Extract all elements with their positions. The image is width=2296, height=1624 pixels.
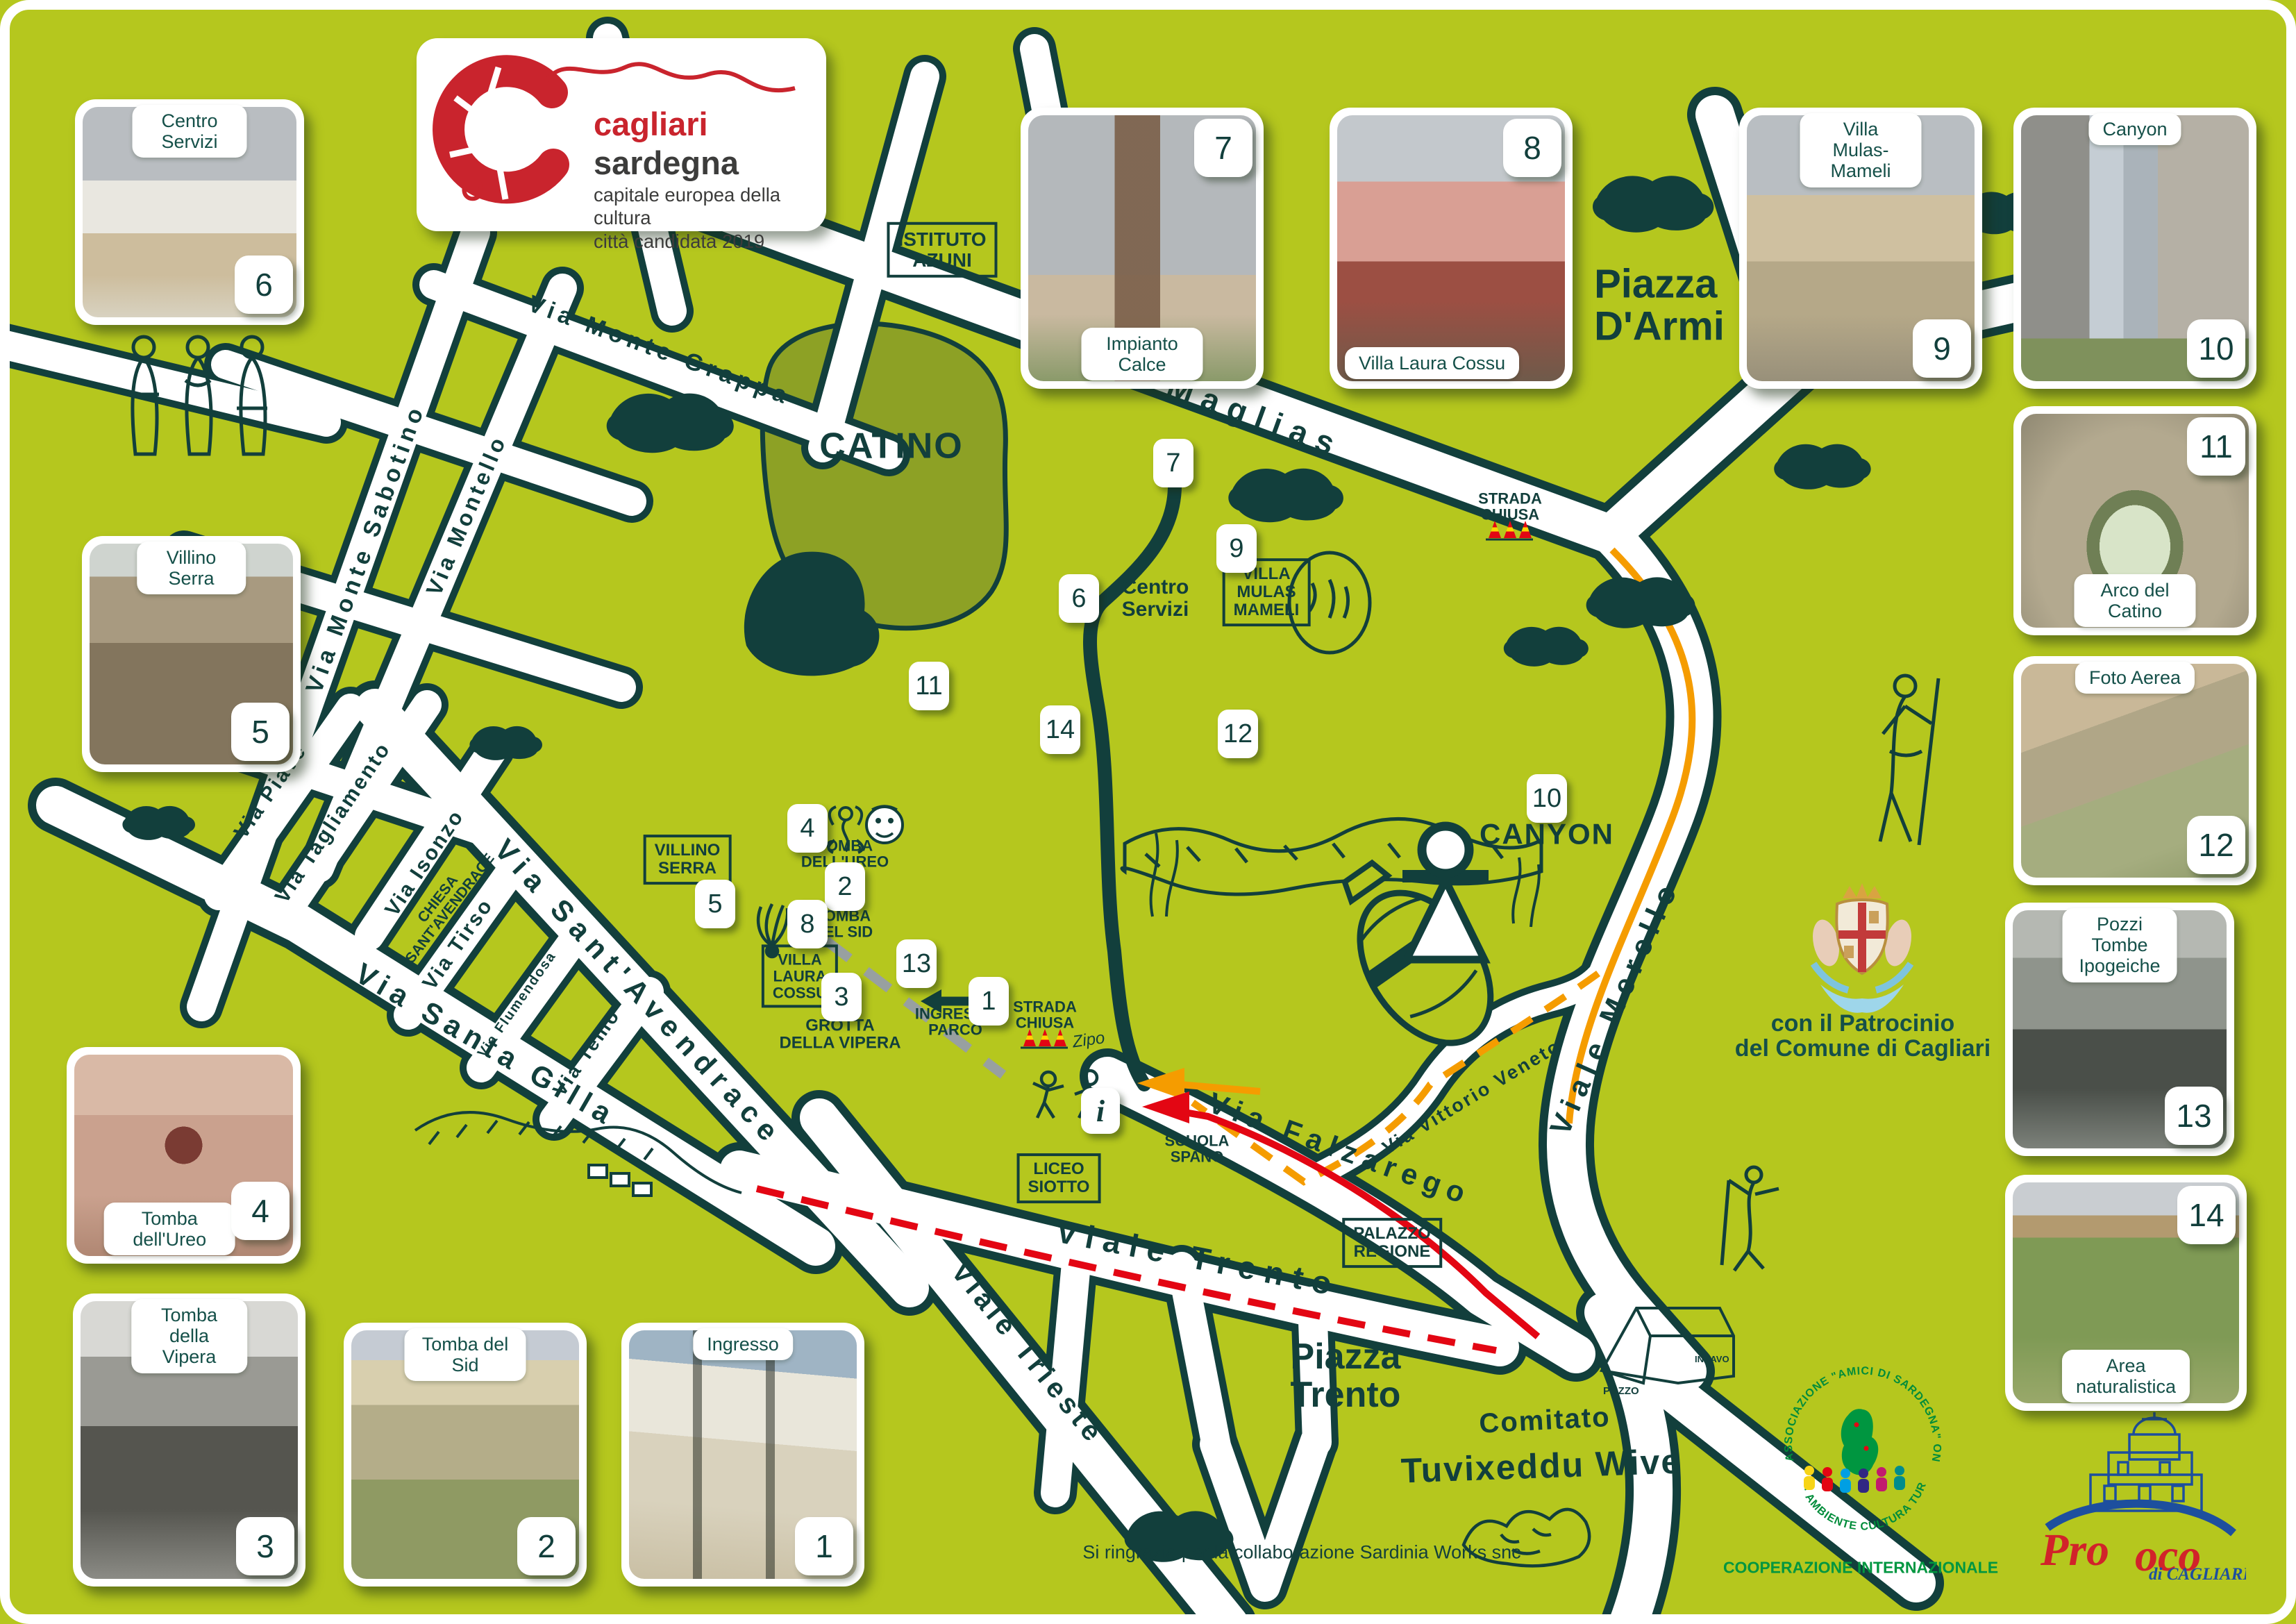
villino-serra-box: VILLINO SERRA	[644, 835, 732, 885]
card-number: 2	[517, 1517, 576, 1575]
card-label: Tomba dell'Ureo	[104, 1203, 235, 1255]
map-marker-2: 2	[825, 862, 865, 911]
card-number: 1	[795, 1517, 853, 1575]
photo-card-11: Arco del Catino 11	[2013, 406, 2256, 635]
card-label: Centro Servizi	[133, 105, 247, 158]
cagliari-2019-logo-card: cagliari sardegna capitale europea della…	[417, 38, 826, 231]
palazzo-regione-box: PALAZZO REGIONE	[1342, 1218, 1442, 1268]
proloco-text-sub: di CAGLIARI	[2149, 1565, 2246, 1581]
svg-text:POZZO: POZZO	[1603, 1385, 1639, 1397]
photo-card-7: Impianto Calce 7	[1021, 108, 1264, 389]
card-number: 9	[1913, 319, 1971, 378]
proloco-text-pro: Pro	[2040, 1525, 2109, 1575]
map-marker-7: 7	[1153, 439, 1193, 487]
map-marker-11: 11	[909, 662, 949, 710]
card-number: 13	[2165, 1087, 2223, 1145]
park-road	[1090, 480, 1175, 1085]
tuvixeddu-map-poster: POZZO INCAVO	[0, 0, 2296, 1624]
liceo-siotto-box: LICEO SIOTTO	[1017, 1153, 1101, 1203]
map-marker-8: 8	[787, 900, 828, 948]
cones-icon-top	[1486, 521, 1533, 539]
committee-title: Comitato	[1478, 1403, 1611, 1439]
logo-thread	[546, 64, 795, 90]
photo-card-4: Tomba dell'Ureo 4	[67, 1047, 301, 1264]
place-label-piazza-darmi: Piazza D'Armi	[1594, 263, 1725, 349]
photo-card-1: Ingresso 1	[621, 1323, 864, 1587]
map-marker-5: 5	[695, 880, 735, 928]
map-marker-9: 9	[1216, 524, 1257, 573]
map-marker-14: 14	[1040, 705, 1080, 754]
map-marker-4: 4	[787, 804, 828, 853]
card-number: 10	[2187, 319, 2245, 378]
card-number: 12	[2187, 816, 2245, 874]
cones-icon-low	[1021, 1029, 1068, 1048]
association-cooperation-text: COOPERAZIONE INTERNAZIONALE	[1723, 1559, 1998, 1577]
logo-title-red: cagliari	[594, 106, 708, 142]
place-label-canyon: CANYON	[1480, 819, 1614, 851]
shield-cross-h	[1838, 930, 1886, 939]
card-label: Villa Mulas-Mameli	[1800, 113, 1922, 187]
place-label-centro-servizi: Centro Servizi	[1122, 576, 1189, 621]
photo-card-8: Villa Laura Cossu 8	[1330, 108, 1573, 389]
card-number: 11	[2187, 417, 2245, 476]
logo-text-block: cagliari sardegna capitale europea della…	[594, 105, 826, 253]
egyptian-figure-sketch	[1880, 676, 1938, 845]
logo-subtitle-1: capitale europea della cultura	[594, 183, 826, 230]
card-number: 14	[2177, 1186, 2236, 1244]
card-number: 5	[231, 703, 290, 761]
place-label-grotta-vipera: GROTTA DELLA VIPERA	[779, 1017, 900, 1053]
card-number: 4	[231, 1182, 290, 1240]
island-dot-2	[1864, 1446, 1869, 1451]
card-label: Impianto Calce	[1082, 328, 1203, 380]
photo-card-5: Villino Serra 5	[82, 536, 301, 772]
thanks-text: Si ringrazia per la collaborazione Sardi…	[1082, 1543, 1520, 1563]
card-number: 8	[1503, 119, 1561, 177]
island-dot-1	[1854, 1423, 1859, 1428]
place-label-strada-chiusa-low: STRADA CHIUSA	[1013, 999, 1077, 1032]
castle-quarter-2	[1844, 946, 1854, 958]
photo-card-6: Centro Servizi 6	[75, 99, 304, 325]
photo-card-3: Tomba della Vipera 3	[73, 1294, 305, 1587]
photo-card-13: Pozzi Tombe Ipogeiche 13	[2005, 903, 2234, 1156]
climber-figure-sketch	[1722, 1167, 1779, 1271]
info-point-marker: i	[1081, 1088, 1120, 1134]
amici-di-sardegna-logo: ASSOCIAZIONE "AMICI DI SARDEGNA" ONLUS ·…	[1769, 1366, 1956, 1568]
photo-card-14: Area naturalistica 14	[2005, 1175, 2247, 1411]
card-label: Canyon	[2088, 113, 2181, 145]
map-marker-12: 12	[1218, 710, 1258, 758]
photo-card-9: Villa Mulas-Mameli 9	[1739, 108, 1982, 389]
card-label: Area naturalistica	[2062, 1350, 2190, 1403]
photo-card-10: Canyon 10	[2013, 108, 2256, 389]
proloco-logo: Pro oco di CAGLIARI	[2031, 1411, 2246, 1581]
logo-subtitle-2: città candidata 2019	[594, 230, 826, 253]
map-marker-3: 3	[821, 973, 862, 1021]
proloco-building-sketch	[2090, 1412, 2202, 1511]
sea-frill	[1820, 985, 1904, 1013]
map-marker-1: 1	[969, 977, 1009, 1026]
card-number: 3	[236, 1517, 294, 1575]
logo-title-dark: sardegna	[594, 144, 739, 181]
card-label: Pozzi Tombe Ipogeiche	[2063, 908, 2177, 982]
svg-text:INCAVO: INCAVO	[1695, 1354, 1729, 1364]
card-number: 7	[1194, 119, 1252, 177]
card-label: Villa Laura Cossu	[1345, 347, 1519, 379]
castle-quarter-1	[1869, 911, 1879, 923]
logo-title: cagliari sardegna	[594, 105, 826, 183]
photo-card-12: Foto Aerea 12	[2013, 656, 2256, 885]
map-marker-13: 13	[896, 939, 937, 988]
card-label: Arco del Catino	[2075, 574, 2196, 627]
card-label: Ingresso	[693, 1328, 793, 1360]
place-label-strada-chiusa-top: STRADA CHIUSA	[1478, 491, 1542, 524]
istituto-azuni-box: ISTITUTO AZUNI	[887, 222, 997, 278]
place-label-scuola-spano: SCUOLA SPANO	[1165, 1133, 1230, 1166]
card-label: Foto Aerea	[2075, 662, 2195, 694]
place-label-catino: CATINO	[819, 427, 963, 465]
card-label: Tomba del Sid	[405, 1328, 526, 1381]
map-marker-10: 10	[1527, 774, 1567, 823]
card-number: 6	[235, 256, 293, 314]
card-label: Villino Serra	[137, 542, 246, 594]
sardinia-island-icon	[1841, 1409, 1879, 1475]
place-label-piazza-trento: Piazza Trento	[1291, 1338, 1401, 1414]
map-marker-6: 6	[1059, 574, 1099, 623]
crown-icon	[1843, 883, 1882, 898]
cagliari-coat-of-arms	[1800, 880, 1925, 1019]
photo-card-2: Tomba del Sid 2	[344, 1323, 587, 1587]
card-label: Tomba della Vipera	[131, 1299, 248, 1373]
